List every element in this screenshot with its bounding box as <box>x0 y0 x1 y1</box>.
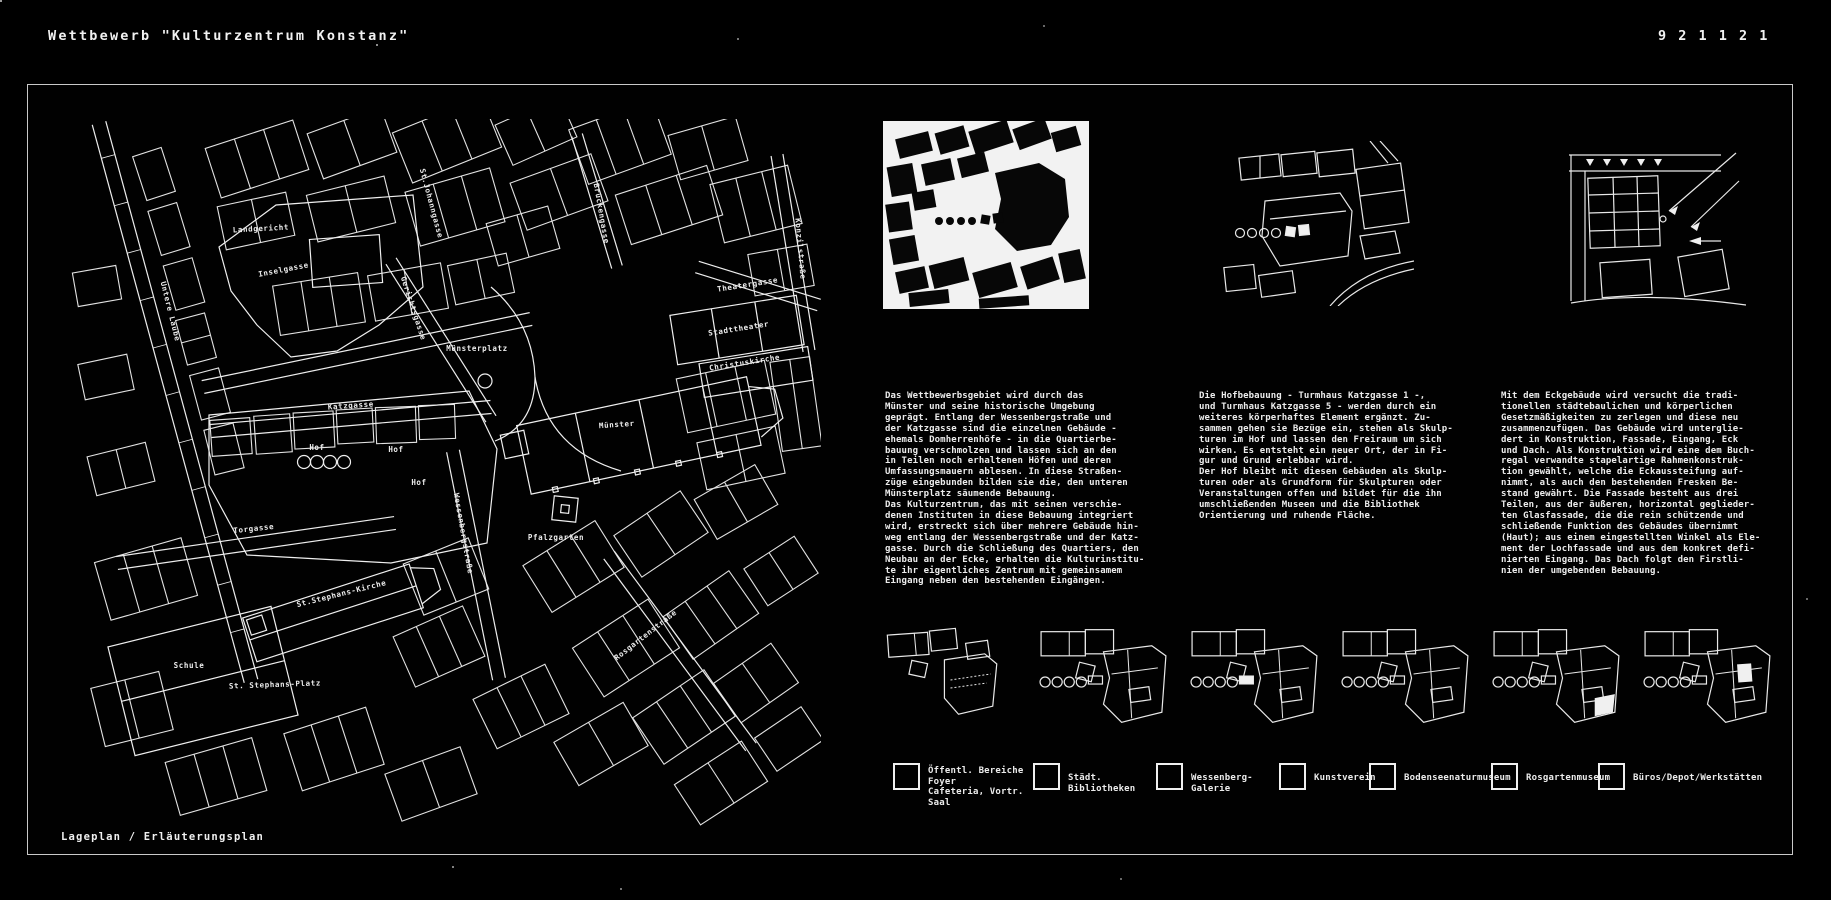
scheme-diagram-1 <box>880 619 1031 741</box>
text-column-1: Das Wettbewerbsgebiet wird durch das Mün… <box>885 391 1155 587</box>
street-tick <box>179 439 193 443</box>
map-label: Katzgasse <box>328 399 375 411</box>
christuskirche-building <box>699 347 813 398</box>
legend-item-6: Rosgartenmuseum <box>1491 763 1598 790</box>
legend-label: Kunstverein <box>1314 773 1376 790</box>
legend-item-3: Wessenberg-Galerie <box>1156 763 1279 794</box>
leader-arrowheads <box>1669 206 1701 245</box>
city-block <box>674 741 767 825</box>
city-block <box>697 426 785 490</box>
pfalzgarten-fountain <box>552 496 578 522</box>
map-label: St. Stephans-Platz <box>229 678 321 690</box>
hof-plan-panel <box>1210 141 1414 306</box>
city-block <box>375 406 416 443</box>
street-tick <box>166 392 180 396</box>
city-block <box>495 119 577 165</box>
scheme-diagram-2 <box>1031 619 1182 741</box>
map-label: Torgasse <box>233 522 275 535</box>
street-tick <box>127 250 141 254</box>
street-tick <box>140 297 154 301</box>
legend-checkbox <box>1598 763 1625 790</box>
sheet-caption: Lageplan / Erläuterungsplan <box>61 831 264 843</box>
city-block <box>165 738 267 816</box>
map-label: St.Stephans-Kirche <box>296 578 388 609</box>
legend-checkbox <box>893 763 920 790</box>
legend-item-4: Kunstverein <box>1279 763 1369 790</box>
legend-label: Öffentl. Bereiche Foyer Cafeteria, Vortr… <box>928 766 1033 808</box>
figure-ground-panel <box>883 121 1089 309</box>
city-block <box>744 536 818 606</box>
city-block <box>78 354 134 400</box>
map-label: Hof <box>388 445 403 454</box>
city-block <box>403 538 489 615</box>
city-block <box>447 253 514 305</box>
map-label: Münster <box>599 419 635 430</box>
city-block <box>273 273 366 336</box>
city-block <box>306 176 395 242</box>
street-tick <box>101 155 115 159</box>
city-block <box>284 707 384 791</box>
map-label: Wessenbergstraße <box>452 492 475 574</box>
landgericht-building <box>219 195 423 357</box>
street-tick <box>153 344 167 348</box>
city-block <box>91 671 173 746</box>
presentation-board: LandgerichtInselgasseSt.JohanngasseGeric… <box>27 84 1793 855</box>
city-block <box>393 606 485 687</box>
city-block <box>72 265 121 306</box>
scheme-diagram-4 <box>1333 619 1484 741</box>
city-block <box>633 670 736 765</box>
legend: Öffentl. Bereiche Foyer Cafeteria, Vortr… <box>893 763 1768 808</box>
city-block <box>614 491 708 577</box>
sheet-number: 9 2 1 1 2 1 <box>1658 28 1769 44</box>
city-block <box>473 664 569 749</box>
city-block <box>87 442 155 495</box>
city-block <box>554 702 648 785</box>
street-tick <box>114 202 128 206</box>
street-edge <box>118 529 396 569</box>
city-block <box>204 423 244 475</box>
city-block <box>486 206 560 266</box>
legend-checkbox <box>1156 763 1183 790</box>
site-plan-map: LandgerichtInselgasseSt.JohanngasseGeric… <box>61 119 821 841</box>
map-label: Landgericht <box>233 223 290 235</box>
street-edge <box>116 517 394 557</box>
city-block <box>307 119 397 179</box>
city-block <box>710 165 802 243</box>
map-label: Konzilstraße <box>793 218 807 280</box>
city-block <box>94 538 197 620</box>
legend-item-7: Büros/Depot/Werkstätten <box>1598 763 1768 790</box>
map-label: St.Johanngasse <box>418 168 445 240</box>
legend-label: Wessenberg-Galerie <box>1191 773 1279 794</box>
scan-speckles <box>0 0 2 2</box>
plaza-circle <box>478 374 492 388</box>
street-edge <box>106 121 258 679</box>
city-block <box>217 192 295 250</box>
map-label: Hof <box>411 478 426 487</box>
triangle-markers <box>1586 159 1662 166</box>
hof-plan-drawing <box>1224 141 1414 306</box>
city-block <box>694 465 778 540</box>
street-tick <box>218 582 232 586</box>
street-tick <box>205 534 219 538</box>
city-block <box>569 119 672 184</box>
city-block <box>205 120 309 198</box>
legend-item-2: Städt. Bibliotheken <box>1033 763 1156 794</box>
text-column-3: Mit dem Eckgebäude wird versucht die tra… <box>1501 391 1771 576</box>
corner-detail-panel <box>1541 141 1746 311</box>
legend-item-5: Bodenseenaturmuseum <box>1369 763 1491 790</box>
map-label: Schule <box>174 661 205 670</box>
street-edge <box>92 125 244 683</box>
corner-detail-drawing <box>1569 153 1746 305</box>
legend-label: Städt. Bibliotheken <box>1068 773 1156 794</box>
legend-checkbox <box>1279 763 1306 790</box>
legend-checkbox <box>1033 763 1060 790</box>
legend-checkbox <box>1369 763 1396 790</box>
map-label: Theatergasse <box>717 275 779 293</box>
city-block <box>615 165 722 244</box>
scheme-diagram-3 <box>1182 619 1333 741</box>
st-stephans-kirche-building <box>243 557 445 662</box>
city-block <box>418 404 455 439</box>
muensterplatz-curve <box>491 287 535 441</box>
scheme-diagram-6 <box>1635 619 1786 741</box>
map-label: Pfalzgarten <box>528 533 584 542</box>
map-label: Inselgasse <box>258 260 310 279</box>
street-tick <box>231 629 245 633</box>
street-edge <box>204 325 532 393</box>
legend-item-1: Öffentl. Bereiche Foyer Cafeteria, Vortr… <box>893 763 1033 808</box>
city-block <box>133 147 176 200</box>
legend-checkbox <box>1491 763 1518 790</box>
city-block <box>385 747 477 821</box>
city-block <box>148 203 190 256</box>
text-column-2: Die Hofbebauung - Turmhaus Katzgasse 1 -… <box>1199 391 1469 522</box>
page-title: Wettbewerb "Kulturzentrum Konstanz" <box>48 28 409 44</box>
map-label: Untere Laube <box>159 281 183 343</box>
map-label: Münsterplatz <box>446 344 507 353</box>
scheme-diagram-strip <box>880 619 1786 741</box>
legend-label: Büros/Depot/Werkstätten <box>1633 773 1762 790</box>
map-label: Hof <box>309 443 324 452</box>
city-block <box>714 643 799 722</box>
scheme-diagram-5 <box>1484 619 1635 741</box>
city-block <box>392 119 501 183</box>
street-tick <box>192 487 206 491</box>
city-block <box>755 707 821 771</box>
city-block <box>676 360 775 433</box>
